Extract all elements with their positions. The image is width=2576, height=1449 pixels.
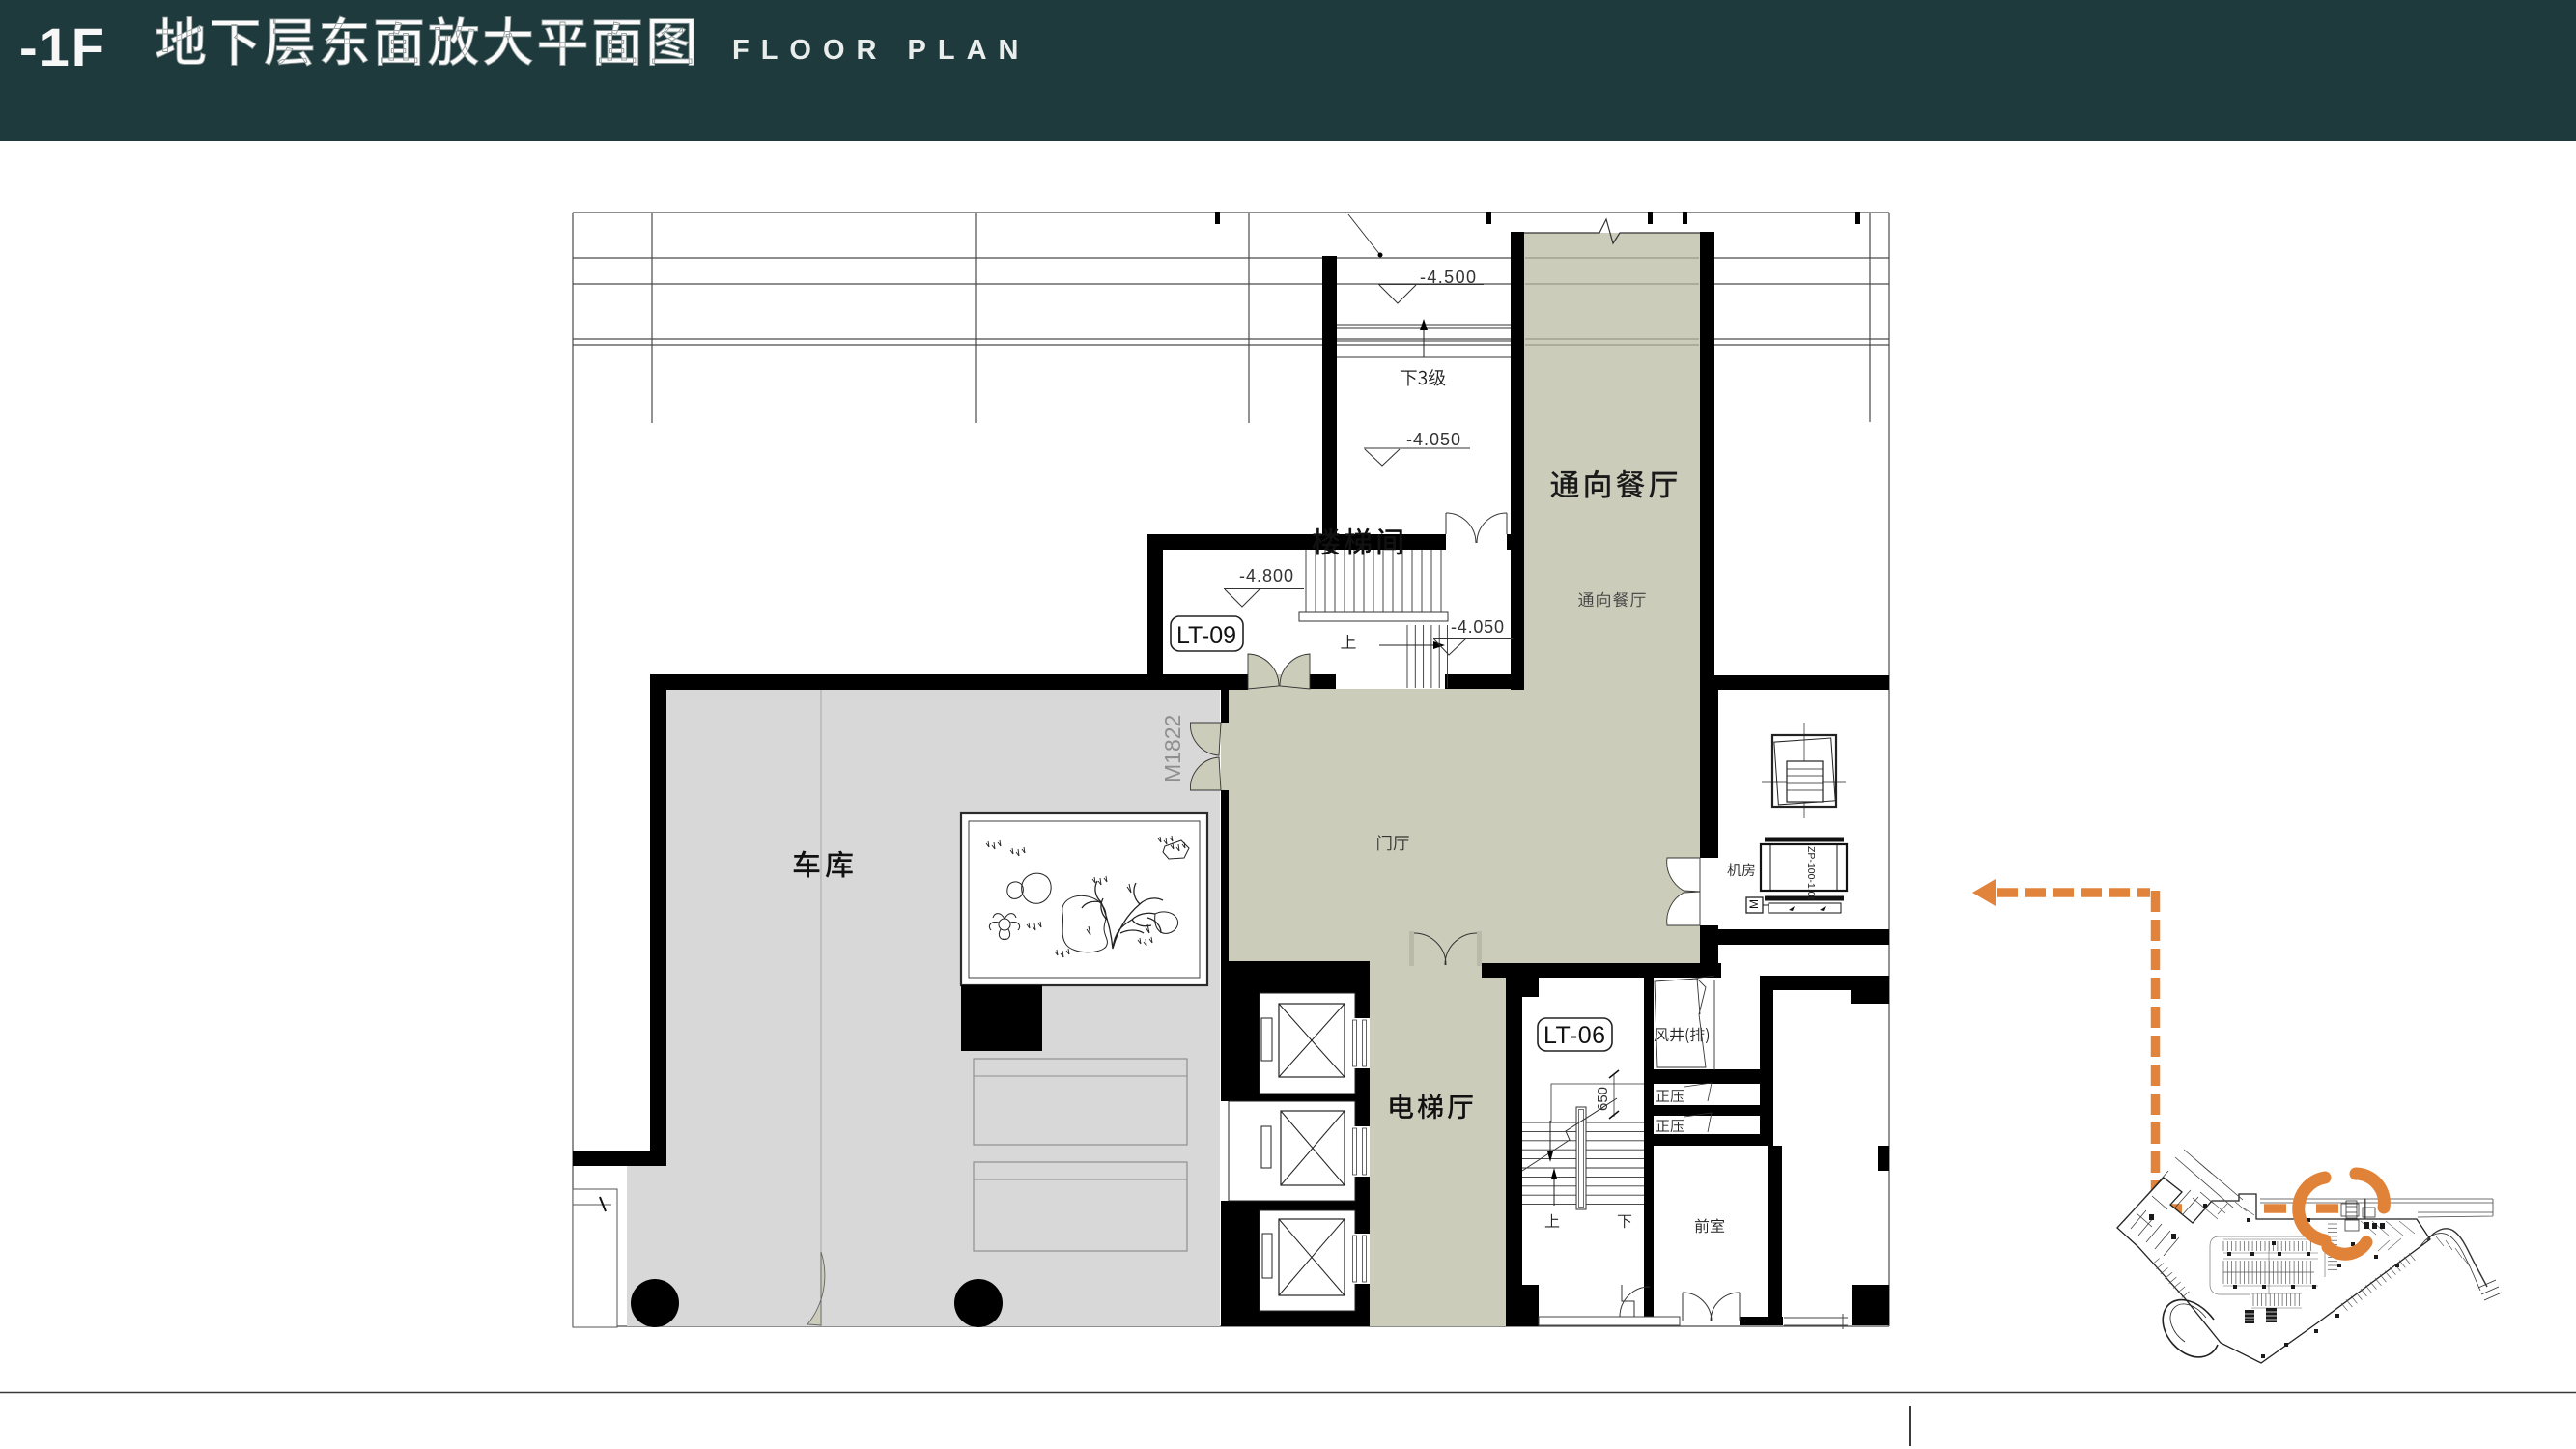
svg-text:-4.050: -4.050 [1451, 617, 1504, 637]
svg-text:M: M [1747, 899, 1761, 909]
svg-text:ZP-100-1.0t: ZP-100-1.0t [1805, 846, 1817, 900]
svg-text:-1F: -1F [19, 16, 106, 77]
svg-text:FLOOR PLAN: FLOOR PLAN [732, 35, 1031, 66]
svg-text:-4.800: -4.800 [1239, 566, 1293, 585]
svg-text:LT-09: LT-09 [1176, 622, 1236, 649]
svg-text:650: 650 [1595, 1087, 1611, 1111]
svg-text:LT-06: LT-06 [1543, 1022, 1605, 1049]
svg-text:-4.050: -4.050 [1406, 430, 1460, 449]
svg-text:M1822: M1822 [1160, 715, 1185, 782]
